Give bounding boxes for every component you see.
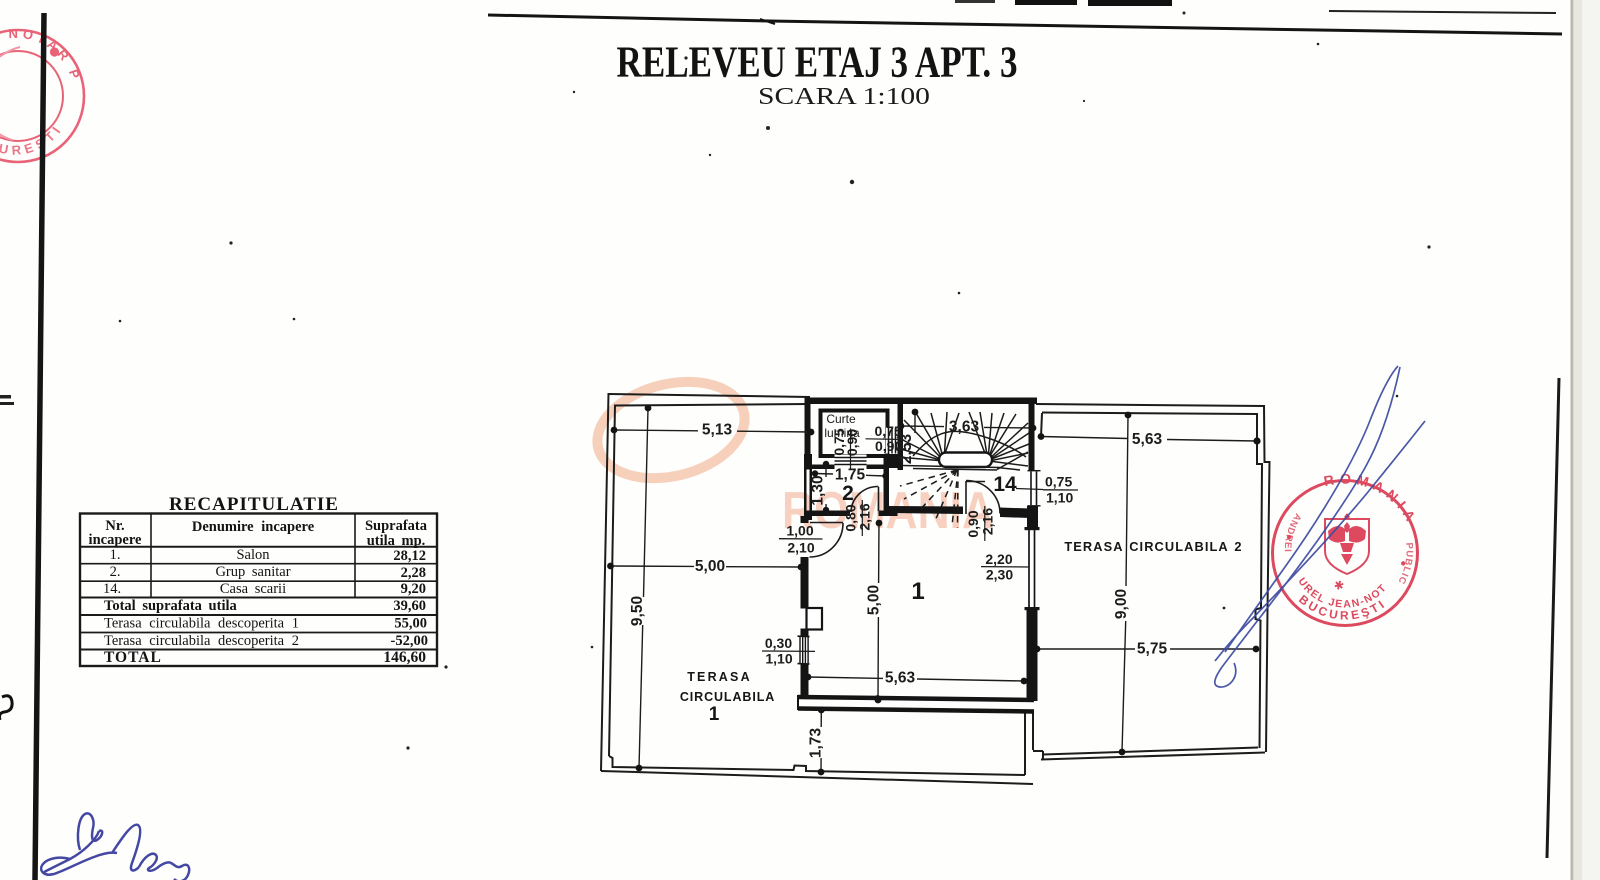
svg-text:5,75: 5,75	[1137, 641, 1168, 658]
svg-text:2.: 2.	[110, 564, 121, 580]
svg-text:TOTAL: TOTAL	[104, 649, 162, 666]
svg-text:5,00: 5,00	[695, 558, 725, 575]
svg-text:Casa scarii: Casa scarii	[220, 581, 286, 597]
svg-text:2: 2	[842, 482, 854, 505]
svg-text:9,50: 9,50	[629, 596, 646, 626]
svg-text:RELEVEU ETAJ 3 APT. 3: RELEVEU ETAJ 3 APT. 3	[617, 38, 1018, 87]
svg-text:3,63: 3,63	[949, 419, 980, 436]
svg-text:0,75: 0,75	[1045, 474, 1072, 490]
svg-text:incapere: incapere	[89, 532, 142, 548]
svg-text:28,12: 28,12	[393, 548, 426, 564]
svg-text:1,10: 1,10	[1046, 490, 1073, 506]
svg-text:5,13: 5,13	[702, 422, 733, 439]
svg-text:SCARA 1:100: SCARA 1:100	[758, 84, 930, 110]
svg-text:Total suprafata utila: Total suprafata utila	[104, 598, 238, 614]
svg-text:14: 14	[993, 473, 1017, 496]
svg-text:0,30: 0,30	[765, 635, 792, 651]
svg-text:1.: 1.	[110, 547, 121, 563]
svg-text:1,73: 1,73	[808, 728, 825, 759]
svg-text:1,10: 1,10	[765, 651, 792, 667]
svg-text:2,16: 2,16	[980, 508, 996, 535]
svg-text:9,00: 9,00	[1113, 589, 1130, 619]
svg-text:2,30: 2,30	[986, 567, 1013, 583]
svg-text:5,63: 5,63	[885, 670, 916, 687]
svg-text:2,10: 2,10	[787, 540, 814, 556]
svg-text:Suprafata: Suprafata	[365, 518, 428, 534]
svg-text:RECAPITULATIE: RECAPITULATIE	[169, 494, 339, 515]
svg-text:Denumire incapere: Denumire incapere	[192, 519, 315, 535]
svg-text:2,20: 2,20	[985, 551, 1012, 567]
svg-text:Terasa circulabila descoperita: Terasa circulabila descoperita 2	[104, 633, 299, 649]
svg-text:2,28: 2,28	[401, 565, 426, 581]
svg-text:2,16: 2,16	[857, 503, 873, 530]
svg-text:utila mp.: utila mp.	[367, 533, 426, 549]
svg-text:5,63: 5,63	[1132, 431, 1163, 448]
svg-text:0,90: 0,90	[875, 438, 902, 454]
svg-text:5,00: 5,00	[866, 585, 883, 615]
svg-text:‑52,00: ‑52,00	[391, 633, 428, 649]
svg-text:14.: 14.	[103, 581, 121, 597]
svg-text:1,30: 1,30	[810, 475, 827, 505]
svg-text:Terasa circulabila descoperita: Terasa circulabila descoperita 1	[104, 616, 299, 632]
svg-text:0,90: 0,90	[844, 429, 860, 456]
svg-text:0,75: 0,75	[875, 423, 902, 439]
svg-text:Salon: Salon	[236, 547, 270, 563]
svg-text:55,00: 55,00	[394, 616, 427, 632]
svg-text:146,60: 146,60	[383, 649, 426, 666]
svg-text:39,60: 39,60	[393, 598, 426, 614]
svg-text:Grup sanitar: Grup sanitar	[215, 564, 290, 580]
svg-text:Curte: Curte	[826, 412, 856, 426]
svg-text:TERASA CIRCULABILA 2: TERASA CIRCULABILA 2	[1064, 539, 1242, 554]
svg-text:1: 1	[709, 704, 720, 725]
svg-text:TERASA: TERASA	[687, 670, 752, 684]
svg-text:9,20: 9,20	[401, 581, 426, 597]
svg-text:1,00: 1,00	[786, 523, 813, 539]
svg-text:CIRCULABILA: CIRCULABILA	[680, 690, 775, 704]
svg-text:1: 1	[911, 578, 924, 605]
